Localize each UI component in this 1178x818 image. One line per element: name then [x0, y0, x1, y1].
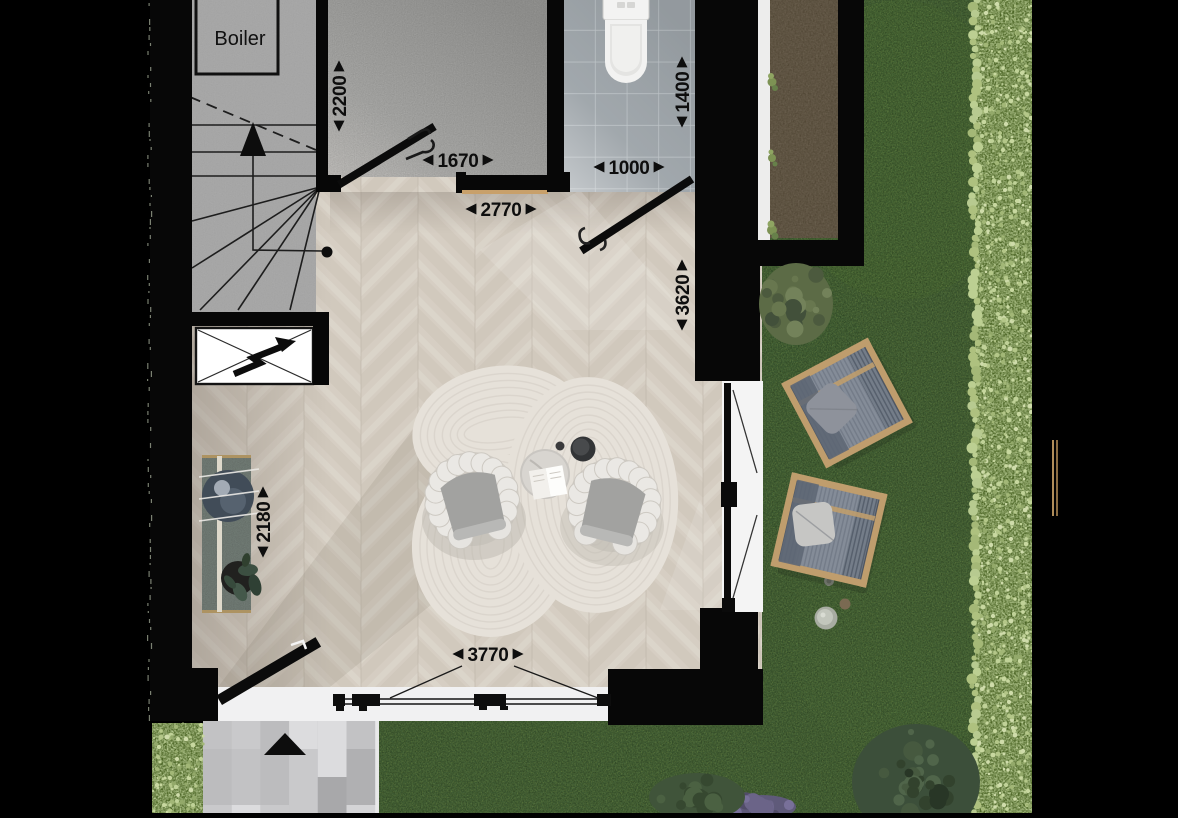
svg-text:2770: 2770 — [480, 200, 521, 221]
svg-text:3770: 3770 — [467, 645, 508, 666]
svg-text:1000: 1000 — [608, 158, 649, 179]
svg-text:1400: 1400 — [673, 71, 694, 112]
svg-text:2200: 2200 — [330, 75, 351, 116]
svg-text:3620: 3620 — [673, 274, 694, 315]
svg-text:2180: 2180 — [254, 501, 275, 542]
svg-text:1670: 1670 — [437, 151, 478, 172]
svg-text:Boiler: Boiler — [214, 28, 265, 50]
